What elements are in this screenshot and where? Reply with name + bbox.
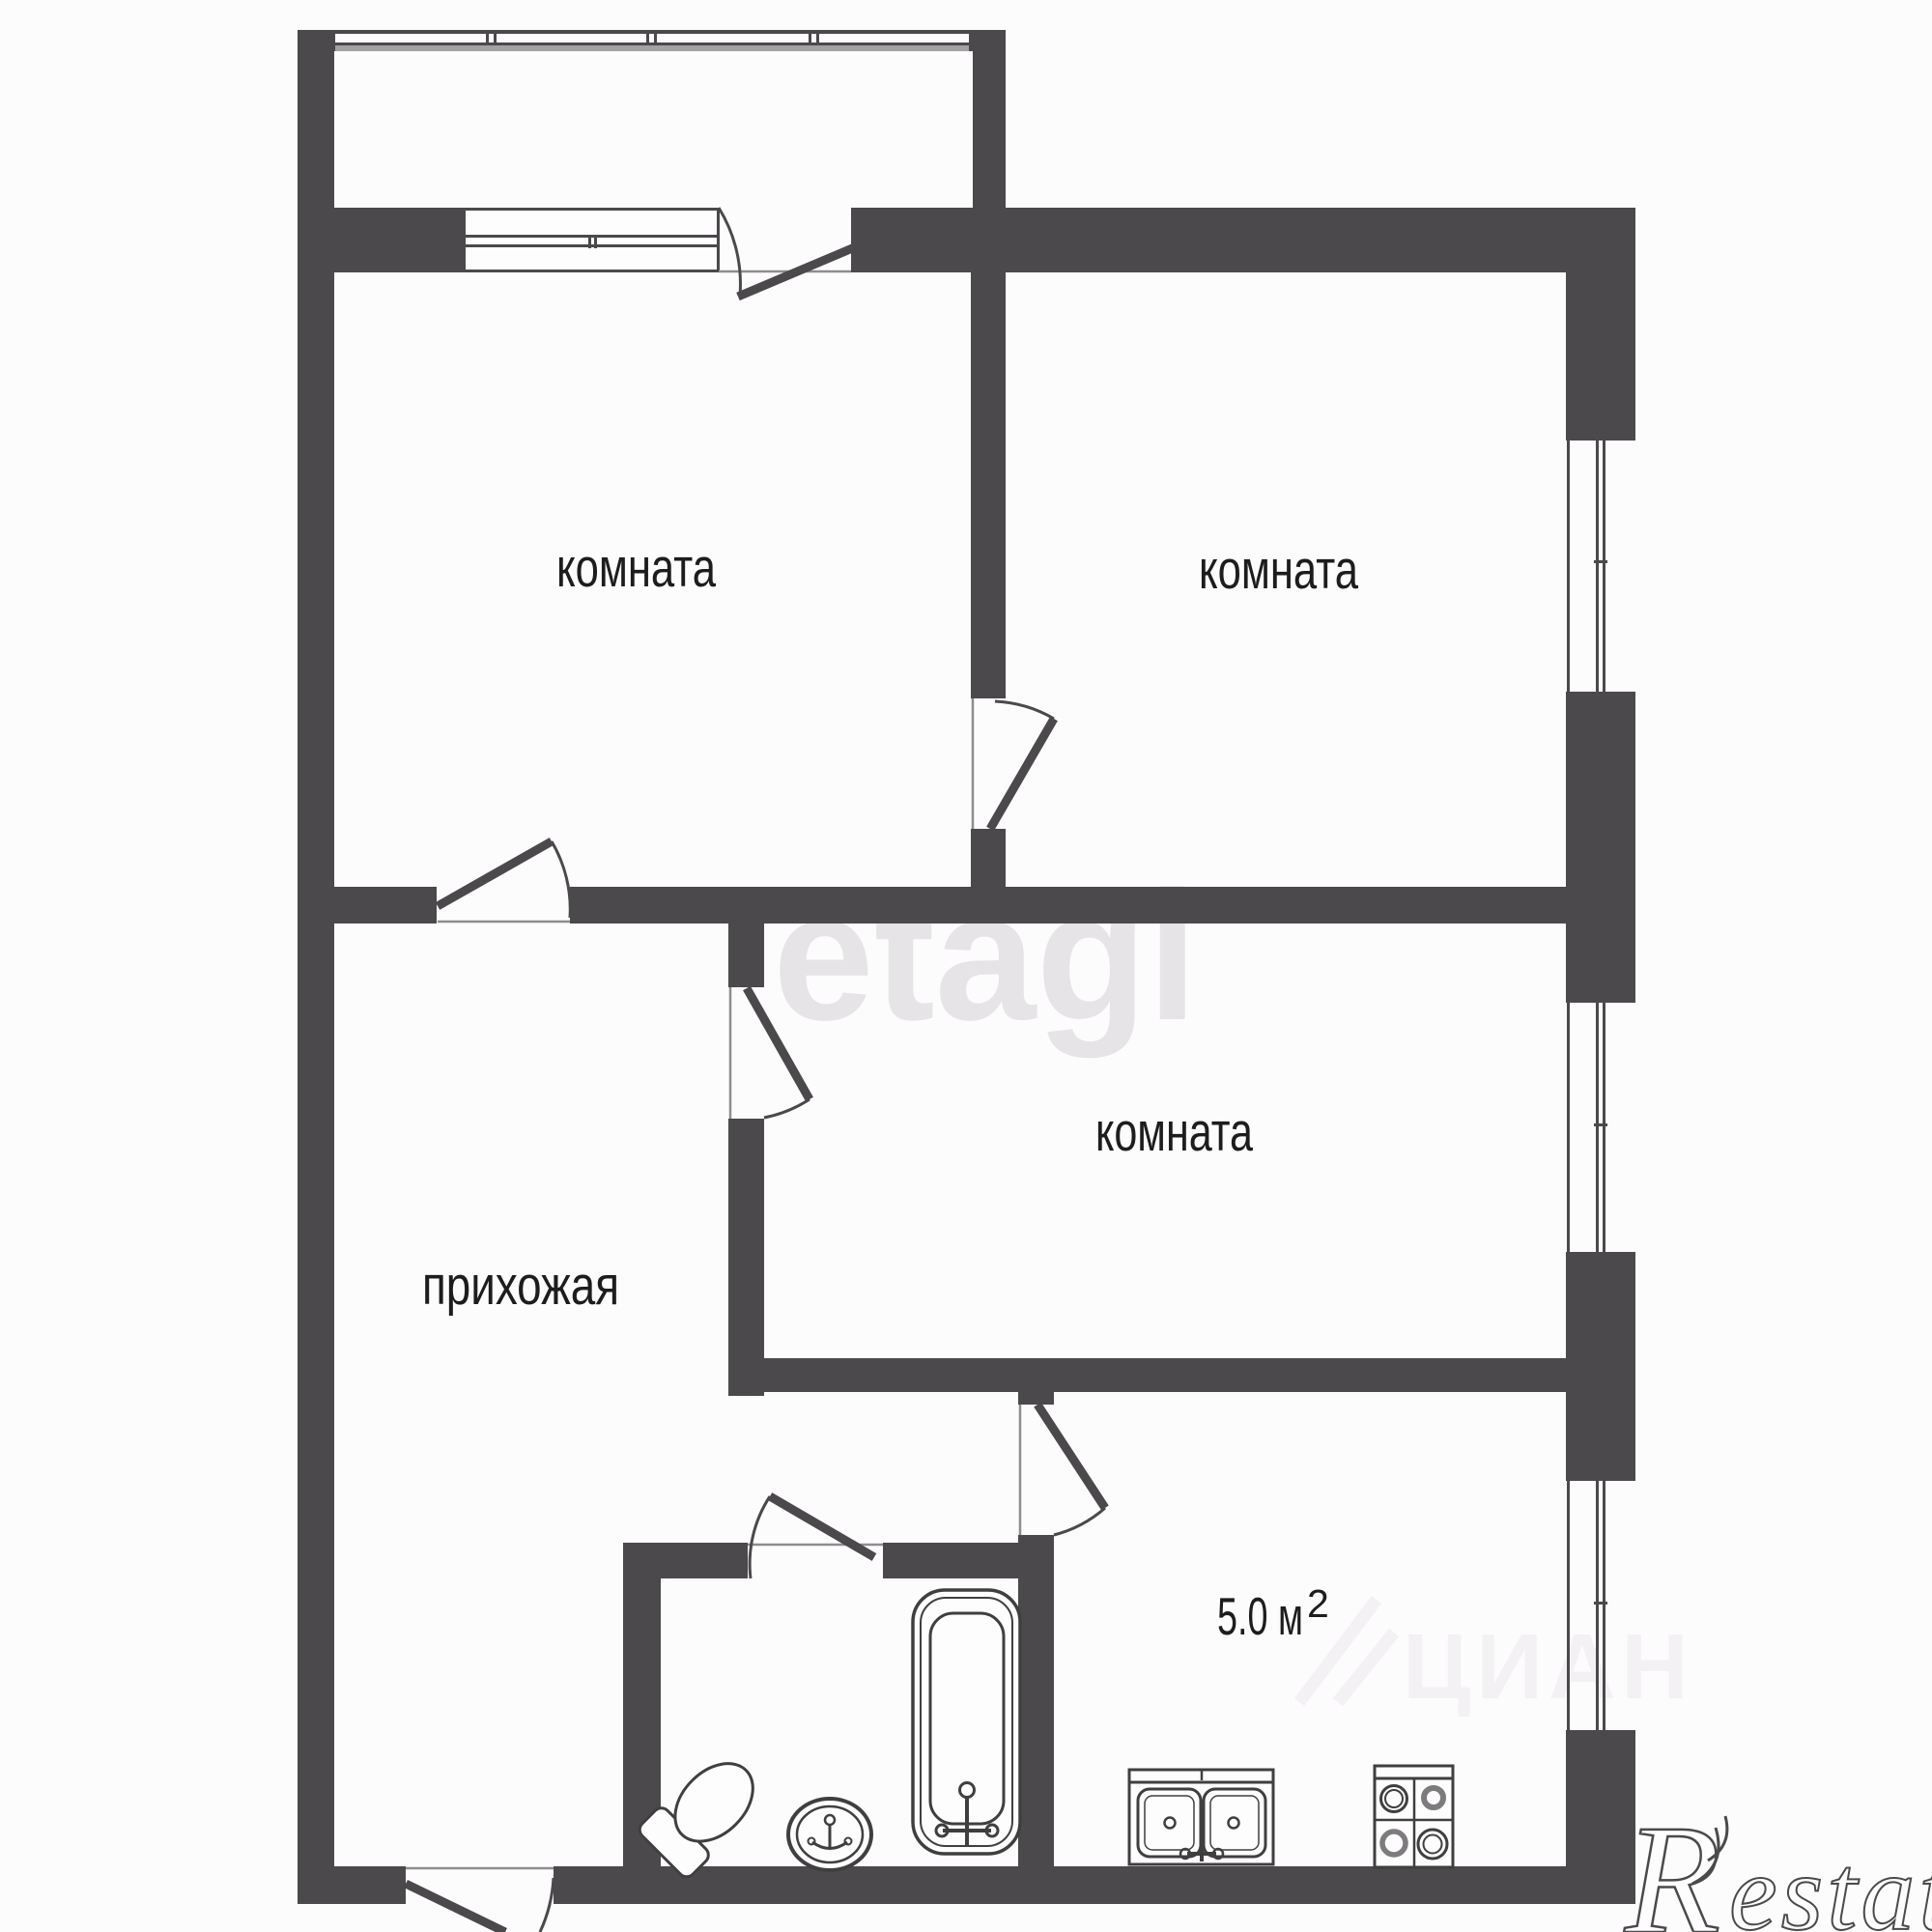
svg-text:комната: комната — [1095, 1101, 1253, 1163]
svg-text:комната: комната — [1199, 539, 1358, 601]
svg-text:estate: estate — [1729, 1833, 1932, 1932]
svg-text:5.0 м: 5.0 м — [1217, 1586, 1303, 1646]
svg-text:2: 2 — [1307, 1581, 1329, 1626]
svg-text:R: R — [1624, 1794, 1720, 1932]
svg-text:прихожая: прихожая — [422, 1255, 619, 1317]
svg-text:ЦИАН: ЦИАН — [1403, 1615, 1694, 1719]
svg-text:комната: комната — [556, 537, 716, 599]
